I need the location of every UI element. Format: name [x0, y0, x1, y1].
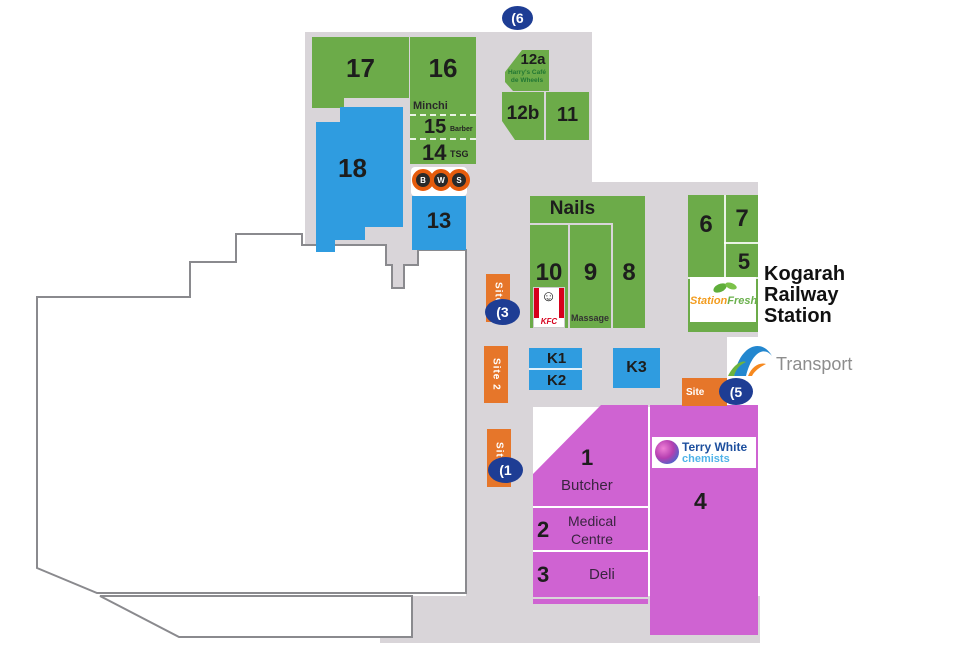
shop-17-label: 17: [312, 55, 409, 81]
shop-16-label: 16: [410, 55, 476, 81]
marker-5-label: (5: [730, 384, 742, 400]
kiosk-k2-label: K2: [547, 373, 566, 388]
shop-11-label: 11: [546, 105, 589, 125]
shop-8-label: 8: [613, 261, 645, 285]
shop-8: 8: [613, 217, 645, 328]
bws-icon: B W S: [412, 169, 470, 191]
marker-6: (6: [502, 6, 533, 30]
station-fresh-word1: Station: [690, 295, 727, 307]
shops-6-7-5-block: 6 7 5 StationFresh: [688, 195, 758, 332]
market-4-number: 4: [694, 490, 707, 513]
woolworths-building-outline: [0, 0, 960, 672]
market-3-number: 3: [537, 564, 549, 586]
bws-letter-s: S: [448, 169, 470, 191]
shop-16-14-block: 16 Minchi 15 Barber 14 TSG: [410, 37, 476, 164]
shop-5-label: 5: [734, 251, 754, 273]
station-fresh-logo: StationFresh: [690, 277, 756, 322]
shop-13: 13: [412, 196, 466, 250]
kfc-stripe-right: [559, 288, 564, 318]
marker-6-label: (6: [511, 10, 523, 26]
shop-nails-label: Nails: [530, 199, 615, 218]
kiosk-k1-k2: K1 K2: [529, 348, 582, 390]
shop-9: 9 Massage: [570, 225, 611, 328]
terry-white-sphere-icon: [655, 440, 679, 464]
market-2-name-line1: Medical: [568, 513, 616, 529]
shop-10-label: 10: [530, 261, 568, 285]
station-fresh-leaf-icon: [712, 280, 738, 294]
market-strip: [533, 599, 648, 604]
shopping-centre-map: 17 16 Minchi 15 Barber 14 TSG 18 B W S 1…: [0, 0, 960, 672]
shop-12a-label: 12a: [517, 52, 549, 67]
marker-5: (5: [719, 378, 753, 405]
shop-barber-label: Barber: [450, 126, 473, 133]
shop-17: 17: [312, 37, 409, 98]
marker-1-label: (1: [499, 462, 511, 478]
kfc-logo: ☺ KFC: [533, 287, 565, 328]
terry-white-sub: chemists: [682, 453, 730, 465]
kfc-colonel-icon: ☺: [541, 289, 556, 304]
site-5-label: Site: [686, 387, 704, 398]
site-2-label: Site 2: [491, 358, 502, 391]
shop-13-label: 13: [412, 210, 466, 232]
shop-minchi-label: Minchi: [413, 100, 448, 112]
kiosk-k3: K3: [613, 348, 660, 388]
marker-3-label: (3: [496, 304, 508, 320]
market-1-number: 1: [581, 447, 593, 469]
shop-11: 11: [546, 92, 589, 140]
market-2-name-line2: Centre: [571, 531, 613, 547]
kfc-label: KFC: [534, 317, 564, 326]
market-4: 4 Terry White chemists: [650, 405, 758, 635]
market-1-name: Butcher: [561, 477, 613, 494]
market-3-deli: 3 Deli: [533, 552, 648, 597]
kiosk-k1-label: K1: [547, 351, 566, 366]
shop-14-label: 14: [422, 142, 446, 164]
market-2-medical-centre: 2 Medical Centre: [533, 508, 648, 550]
shop-7-label: 7: [732, 207, 752, 231]
site-2-marker: Site 2: [484, 346, 508, 403]
bws-strip: B W S: [411, 167, 467, 196]
market-2-number: 2: [537, 519, 549, 541]
kfc-stripe-left: [534, 288, 539, 318]
terry-white-name: Terry White: [682, 440, 747, 454]
shop-15-label: 15: [424, 117, 446, 137]
shop-massage-label: Massage: [571, 313, 609, 323]
shop-17-tab: [312, 98, 344, 108]
station-fresh-word2: Fresh: [727, 295, 757, 307]
shop-18-label: 18: [338, 155, 367, 181]
shop-6-label: 6: [696, 213, 716, 237]
shop-9-label: 9: [570, 261, 611, 285]
harrys-cafe-line2: de Wheels: [505, 77, 549, 84]
harrys-cafe-line1: Harry's Café: [505, 69, 549, 76]
shop-12b-label: 12b: [502, 104, 544, 123]
marker-1: (1: [488, 457, 523, 483]
market-3-name: Deli: [589, 566, 615, 583]
kiosk-k3-label: K3: [613, 360, 660, 376]
shop-tsg-label: TSG: [450, 149, 469, 159]
marker-3: (3: [485, 299, 520, 325]
terry-white-logo: Terry White chemists: [652, 437, 756, 468]
